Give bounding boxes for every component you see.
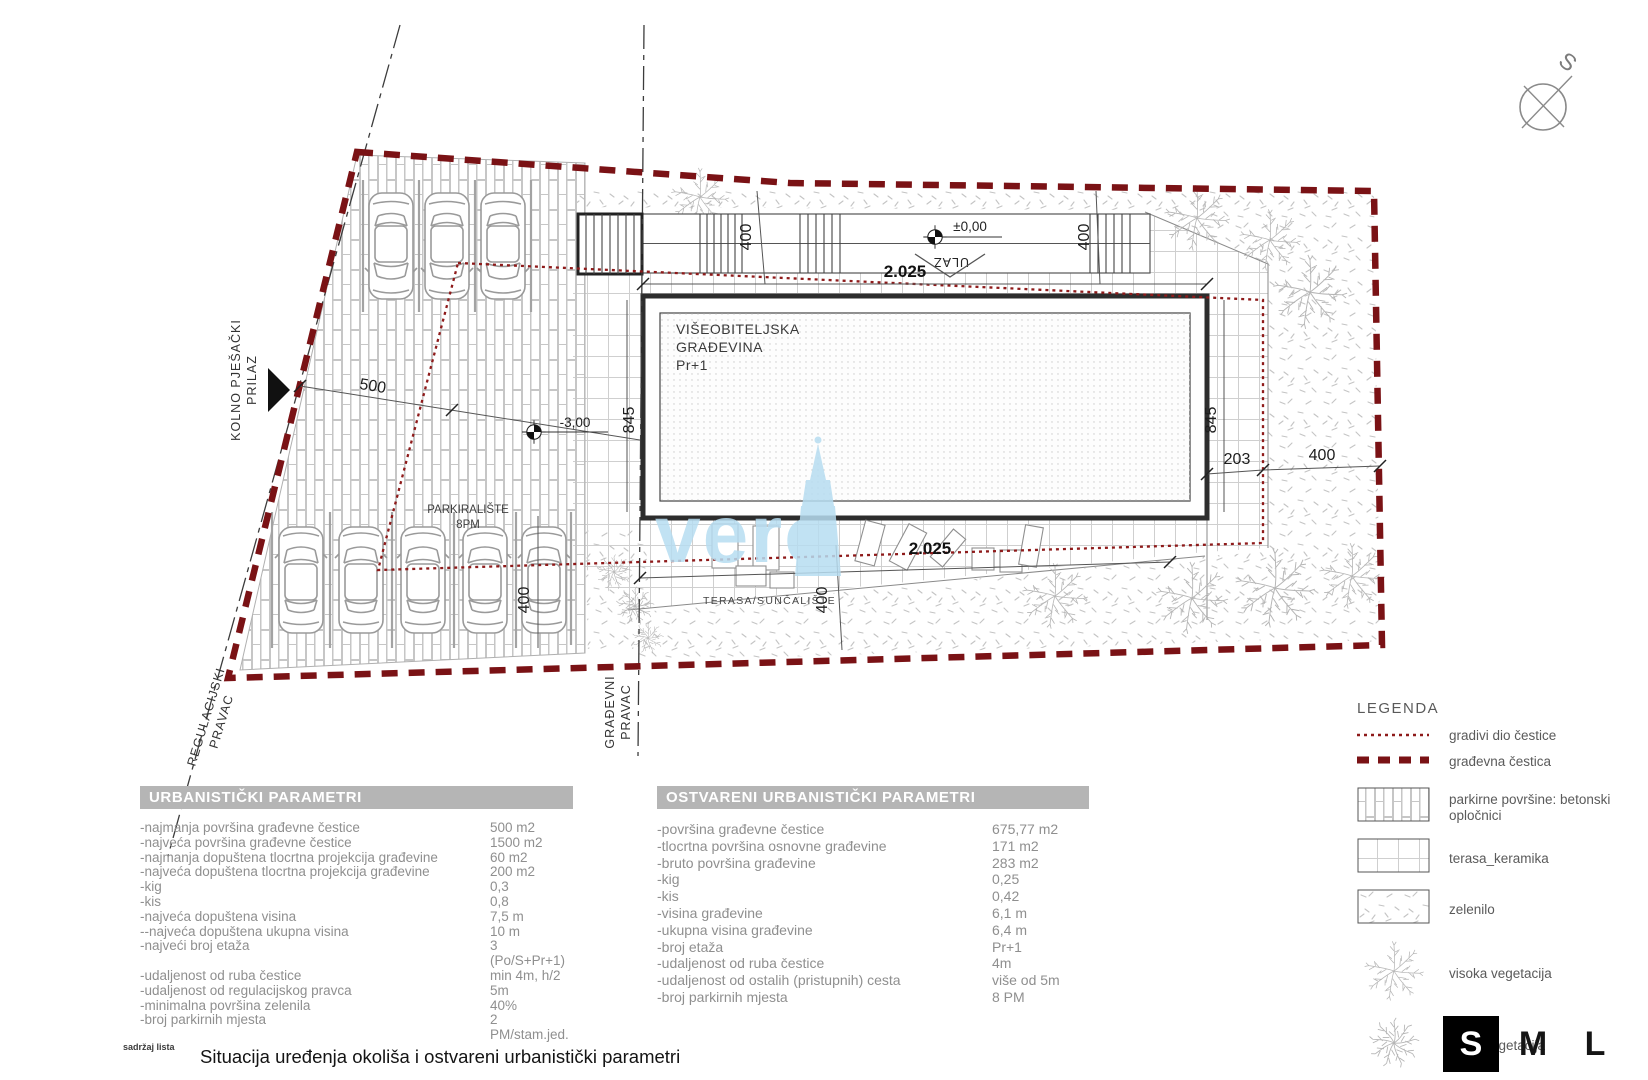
sheet-content-label: sadržaj lista — [123, 1042, 175, 1052]
table-row: -najveća dopuštena tlocrtna projekcija g… — [140, 865, 573, 880]
image-size-selector: S M L — [1443, 1016, 1623, 1072]
size-button-m[interactable]: M — [1505, 1016, 1561, 1072]
table-row: -najveći broj etaža 3 (Po/S+Pr+1) — [140, 939, 573, 969]
row-label: -površina građevne čestice — [657, 821, 992, 838]
north-label: S — [1554, 47, 1582, 77]
table-row: -najmanja površina građevne čestice 500 … — [140, 821, 573, 836]
row-label: -kig — [657, 871, 992, 888]
table-row: -ukupna visina građevine 6,4 m — [657, 922, 1089, 939]
row-value: 0,42 — [992, 888, 1019, 905]
access-road-label-line1: KOLNO PJEŠAČKI — [228, 319, 243, 441]
table-row: -broj parkirnih mjesta 2 PM/stam.jed. — [140, 1013, 573, 1043]
row-value: 40% — [490, 999, 517, 1014]
dim-parking-depth: 400 — [516, 587, 533, 614]
row-label: -broj etaža — [657, 939, 992, 956]
table-row: -najveća površina građevne čestice 1500 … — [140, 836, 573, 851]
row-label: -udaljenost od regulacijskog pravca — [140, 984, 490, 999]
table-row: -visina građevine 6,1 m — [657, 905, 1089, 922]
table-row: -kis 0,42 — [657, 888, 1089, 905]
row-value: 5m — [490, 984, 509, 999]
legend-item-buildable-part: gradivi dio čestice — [1357, 727, 1648, 745]
dim-building-width-bottom: 2.025 — [909, 539, 952, 558]
row-label: -bruto površina građevine — [657, 855, 992, 872]
row-label: -kis — [657, 888, 992, 905]
row-value: 1500 m2 — [490, 836, 543, 851]
row-label: -ukupna visina građevine — [657, 922, 992, 939]
row-value: 0,3 — [490, 880, 509, 895]
row-label: -najmanja površina građevne čestice — [140, 821, 490, 836]
row-value: 2 PM/stam.jed. — [490, 1013, 573, 1043]
table-urban-parameters-header: URBANISTIČKI PARAMETRI — [140, 786, 573, 809]
table-row: -kis 0,8 — [140, 895, 573, 910]
dim-building-width-top: 2.025 — [884, 262, 927, 281]
row-label: -najveća površina građevne čestice — [140, 836, 490, 851]
row-value: 675,77 m2 — [992, 821, 1058, 838]
legend-item-high-vegetation: visoka vegetacija — [1357, 938, 1648, 1009]
dim-front-setback-left: 400 — [738, 224, 755, 251]
row-value: min 4m, h/2 — [490, 969, 561, 984]
speckle-pattern-icon — [1357, 889, 1435, 930]
dim-side-gap: 203 — [1224, 451, 1251, 468]
table-row: --najveća dopuštena ukupna visina 10 m — [140, 925, 573, 940]
building-name-line1: VIŠEOBITELJSKA — [676, 321, 800, 337]
parking-label-line1: PARKIRALIŠTE — [427, 503, 509, 516]
row-value: 6,4 m — [992, 922, 1027, 939]
dim-building-depth-right: 845 — [1203, 407, 1220, 434]
row-label: -udaljenost od ruba čestice — [140, 969, 490, 984]
row-value: 3 (Po/S+Pr+1) — [490, 939, 573, 969]
row-label: -najveća dopuštena visina — [140, 910, 490, 925]
table-row: -najmanja dopuštena tlocrtna projekcija … — [140, 851, 573, 866]
site-plan-sheet: VIŠEOBITELJSKA GRAĐEVINA Pr+1 — [0, 0, 1648, 1080]
table-row: -kig 0,3 — [140, 880, 573, 895]
row-label: -tlocrtna površina osnovne građevine — [657, 838, 992, 855]
row-value: više od 5m — [992, 972, 1060, 989]
parking-label-line2: 8PM — [456, 519, 480, 531]
table-urban-parameters: URBANISTIČKI PARAMETRI -najmanja površin… — [140, 786, 573, 1043]
row-value: 60 m2 — [490, 851, 528, 866]
table-row: -broj etaža Pr+1 — [657, 939, 1089, 956]
table-row: -minimalna površina zelenila 40% — [140, 999, 573, 1014]
svg-text:GRAĐEVNI: GRAĐEVNI — [603, 675, 617, 748]
row-label: -broj parkirnih mjesta — [140, 1013, 490, 1043]
dim-building-depth-left: 845 — [621, 407, 638, 434]
row-value: 283 m2 — [992, 855, 1039, 872]
table-achieved-parameters: OSTVARENI URBANISTIČKI PARAMETRI -površi… — [657, 786, 1089, 1006]
size-button-s[interactable]: S — [1443, 1016, 1499, 1072]
entry-level-label: ±0,00 — [953, 219, 987, 234]
row-value: Pr+1 — [992, 939, 1022, 956]
row-label: -udaljenost od ostalih (pristupnih) cest… — [657, 972, 992, 989]
building: VIŠEOBITELJSKA GRAĐEVINA Pr+1 — [643, 296, 1207, 518]
table-row: -udaljenost od regulacijskog pravca 5m — [140, 984, 573, 999]
row-label: -visina građevine — [657, 905, 992, 922]
svg-text:PRAVAC: PRAVAC — [619, 684, 633, 740]
row-label: -najveći broj etaža — [140, 939, 490, 969]
table-row: -udaljenost od ruba čestice 4m — [657, 955, 1089, 972]
table-row: -kig 0,25 — [657, 871, 1089, 888]
row-label: -najveća dopuštena tlocrtna projekcija g… — [140, 865, 490, 880]
bush-icon — [1357, 1015, 1435, 1076]
legend-item-greenery: zelenilo — [1357, 889, 1648, 930]
entrance-label: ULAZ — [933, 255, 969, 269]
building-direction-label: GRAĐEVNI PRAVAC — [603, 675, 633, 748]
row-value: 7,5 m — [490, 910, 524, 925]
legend-item-parking-surface: parkirne površine: betonski opločnici — [1357, 787, 1648, 828]
row-label: -kig — [140, 880, 490, 895]
table-row: -površina građevne čestice 675,77 m2 — [657, 821, 1089, 838]
size-button-l[interactable]: L — [1567, 1016, 1623, 1072]
row-value: 171 m2 — [992, 838, 1039, 855]
brick-pattern-icon — [1357, 787, 1435, 828]
stairs — [578, 214, 1150, 274]
grid-pattern-icon — [1357, 838, 1435, 879]
legend-item-terrace: terasa_keramika — [1357, 838, 1648, 879]
row-label: -minimalna površina zelenila — [140, 999, 490, 1014]
table-row: -bruto površina građevine 283 m2 — [657, 855, 1089, 872]
row-value: 0,25 — [992, 871, 1019, 888]
table-achieved-parameters-rows: -površina građevne čestice 675,77 m2 -tl… — [657, 809, 1089, 1006]
row-value: 500 m2 — [490, 821, 535, 836]
row-value: 8 PM — [992, 989, 1025, 1006]
tree-icon — [1357, 938, 1435, 1009]
row-value: 0,8 — [490, 895, 509, 910]
access-road-label-line2: PRILAZ — [245, 355, 259, 405]
row-label: -kis — [140, 895, 490, 910]
row-value: 6,1 m — [992, 905, 1027, 922]
legend-item-parcel: građevna čestica — [1357, 753, 1648, 771]
thin-dashed-line-icon — [1357, 727, 1435, 745]
access-arrow-icon — [268, 368, 290, 412]
table-row: -tlocrtna površina osnovne građevine 171… — [657, 838, 1089, 855]
table-row: -broj parkirnih mjesta 8 PM — [657, 989, 1089, 1006]
dim-side-setback: 400 — [1309, 447, 1336, 464]
table-row: -najveća dopuštena visina 7,5 m — [140, 910, 573, 925]
legend-title: LEGENDA — [1357, 700, 1648, 717]
north-compass-icon: S — [1520, 47, 1582, 130]
table-achieved-parameters-header: OSTVARENI URBANISTIČKI PARAMETRI — [657, 786, 1089, 809]
dim-front-setback-right: 400 — [1076, 224, 1093, 251]
building-name-line3: Pr+1 — [676, 357, 708, 373]
row-label: --najveća dopuštena ukupna visina — [140, 925, 490, 940]
table-urban-parameters-rows: -najmanja površina građevne čestice 500 … — [140, 809, 573, 1043]
regulation-line-label: REGULACIJSKI PRAVAC — [185, 666, 244, 773]
sheet-title: Situacija uređenja okoliša i ostvareni u… — [200, 1046, 680, 1068]
table-row: -udaljenost od ostalih (pristupnih) cest… — [657, 972, 1089, 989]
parking-level-label: -3,00 — [560, 415, 591, 430]
row-label: -udaljenost od ruba čestice — [657, 955, 992, 972]
row-label: -broj parkirnih mjesta — [657, 989, 992, 1006]
row-label: -najmanja dopuštena tlocrtna projekcija … — [140, 851, 490, 866]
terrace-label: TERASA/SUNČALIŠTE — [703, 594, 836, 607]
building-name-line2: GRAĐEVINA — [676, 339, 763, 355]
row-value: 4m — [992, 955, 1011, 972]
row-value: 10 m — [490, 925, 520, 940]
thick-dashed-line-icon — [1357, 753, 1435, 771]
table-row: -udaljenost od ruba čestice min 4m, h/2 — [140, 969, 573, 984]
row-value: 200 m2 — [490, 865, 535, 880]
